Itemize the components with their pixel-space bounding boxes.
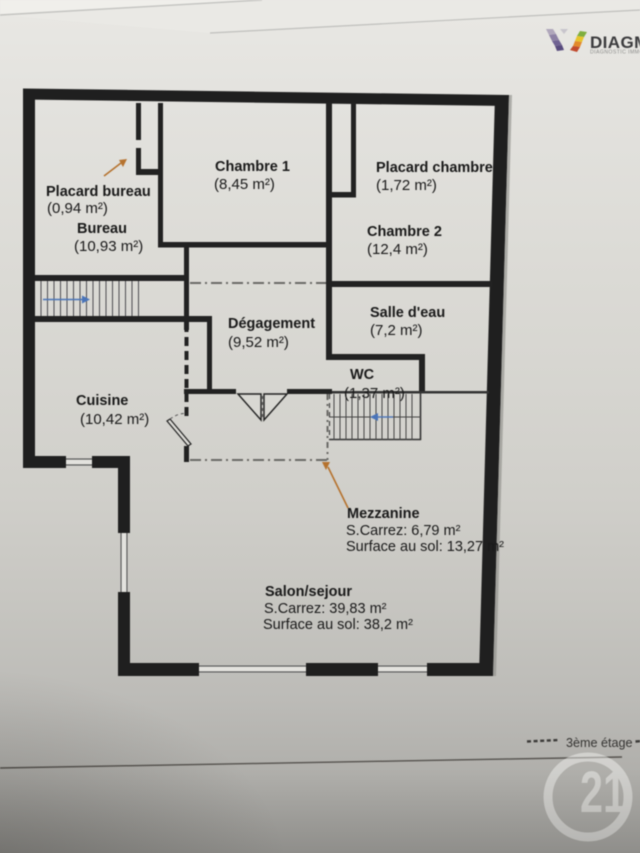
svg-text:Surface au sol: 13,27 m²: Surface au sol: 13,27 m² — [346, 539, 504, 555]
svg-text:Cuisine: Cuisine — [76, 393, 128, 409]
svg-text:(0,94 m²): (0,94 m²) — [47, 200, 108, 217]
svg-text:(12,4 m²): (12,4 m²) — [367, 241, 428, 258]
svg-text:Chambre 2: Chambre 2 — [367, 224, 442, 240]
svg-text:Placard bureau: Placard bureau — [46, 184, 151, 200]
svg-text:(10,42 m²): (10,42 m²) — [80, 411, 149, 428]
svg-text:Bureau: Bureau — [77, 221, 127, 237]
svg-text:Placard chambre: Placard chambre — [376, 160, 493, 176]
svg-text:(7,2 m²): (7,2 m²) — [370, 322, 423, 339]
svg-text:21: 21 — [580, 760, 626, 825]
svg-text:S.Carrez: 6,79 m²: S.Carrez: 6,79 m² — [346, 523, 461, 539]
svg-text:Chambre 1: Chambre 1 — [215, 159, 290, 175]
svg-text:(1,37 m²): (1,37 m²) — [344, 385, 405, 402]
svg-text:3ème étage: 3ème étage — [566, 736, 633, 750]
svg-text:S.Carrez: 39,83 m²: S.Carrez: 39,83 m² — [264, 601, 387, 617]
svg-text:Salle d'eau: Salle d'eau — [370, 305, 445, 321]
svg-text:(8,45 m²): (8,45 m²) — [214, 176, 275, 193]
svg-text:Surface au sol: 38,2 m²: Surface au sol: 38,2 m² — [263, 617, 413, 633]
svg-text:(1,72 m²): (1,72 m²) — [376, 177, 437, 194]
svg-text:WC: WC — [350, 367, 375, 383]
svg-text:Dégagement: Dégagement — [228, 316, 315, 332]
svg-text:Mezzanine: Mezzanine — [347, 506, 420, 522]
svg-text:DIAGNOSTIC IMMOBILIER: DIAGNOSTIC IMMOBILIER — [590, 50, 640, 56]
svg-text:(10,93 m²): (10,93 m²) — [74, 238, 143, 255]
svg-text:Salon/sejour: Salon/sejour — [265, 584, 352, 600]
svg-text:(9,52 m²): (9,52 m²) — [228, 334, 289, 351]
